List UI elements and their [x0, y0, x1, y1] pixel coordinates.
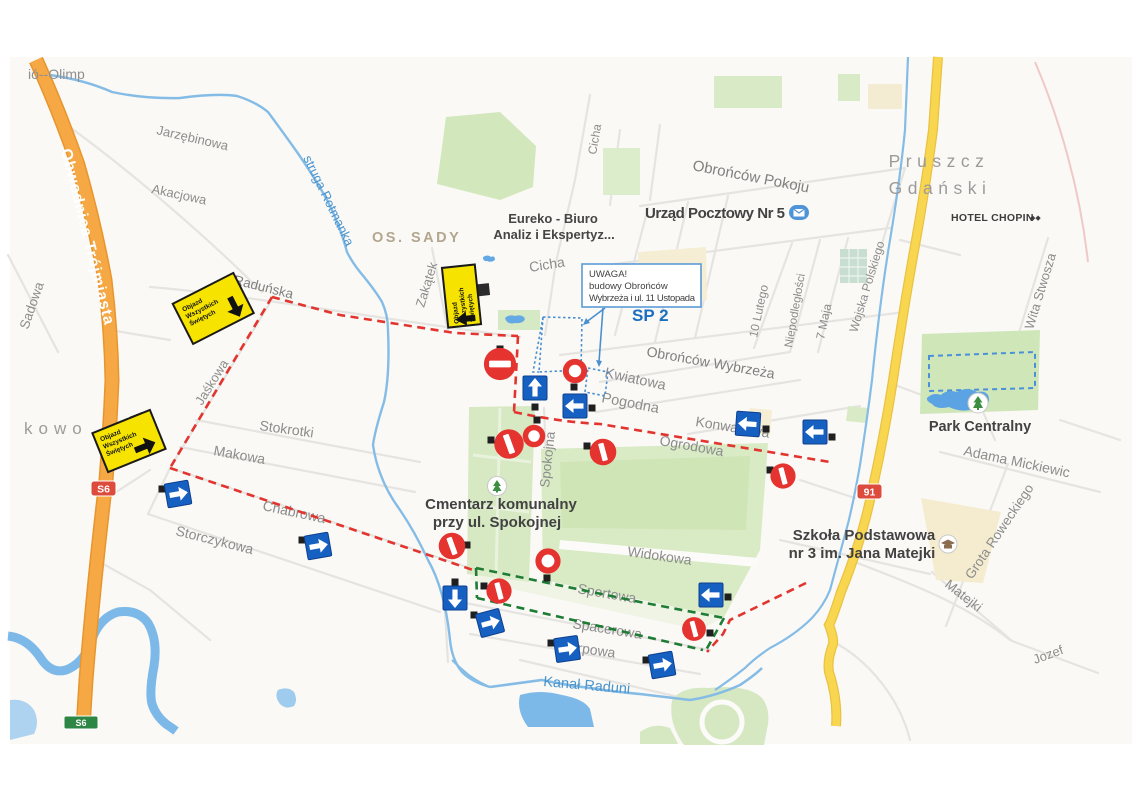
svg-text:UWAGA!: UWAGA! [589, 269, 627, 280]
svg-text:SP 2: SP 2 [632, 306, 669, 325]
svg-text:kowo: kowo [24, 419, 88, 438]
svg-text:przy ul. Spokojnej: przy ul. Spokojnej [433, 514, 561, 531]
svg-text:Eureko - Biuro: Eureko - Biuro [508, 211, 598, 226]
svg-text:nr 3 im. Jana Matejki: nr 3 im. Jana Matejki [789, 545, 936, 562]
svg-text:HOTEL CHOPIN: HOTEL CHOPIN [951, 212, 1034, 224]
svg-text:Wybrzeża i ul. 11 Ustopada: Wybrzeża i ul. 11 Ustopada [589, 293, 696, 304]
svg-text:OS. SADY: OS. SADY [372, 230, 461, 246]
svg-text:budowy Obrońców: budowy Obrońców [589, 281, 668, 292]
svg-text:Cmentarz komunalny: Cmentarz komunalny [425, 496, 577, 513]
svg-text:S6: S6 [97, 484, 110, 496]
svg-text:Pruszcz: Pruszcz [889, 151, 990, 171]
svg-text:S6: S6 [75, 718, 86, 728]
svg-text:◆◆: ◆◆ [1030, 215, 1041, 222]
svg-text:Park Centralny: Park Centralny [929, 419, 1031, 435]
svg-text:ió--Olimp: ió--Olimp [28, 66, 85, 82]
svg-text:Gdański: Gdański [889, 178, 992, 198]
svg-text:Analiz i Ekspertyz...: Analiz i Ekspertyz... [493, 227, 614, 242]
svg-text:Szkoła Podstawowa: Szkoła Podstawowa [793, 527, 936, 544]
svg-text:Urząd Pocztowy Nr 5: Urząd Pocztowy Nr 5 [645, 205, 785, 222]
svg-text:91: 91 [864, 487, 876, 499]
